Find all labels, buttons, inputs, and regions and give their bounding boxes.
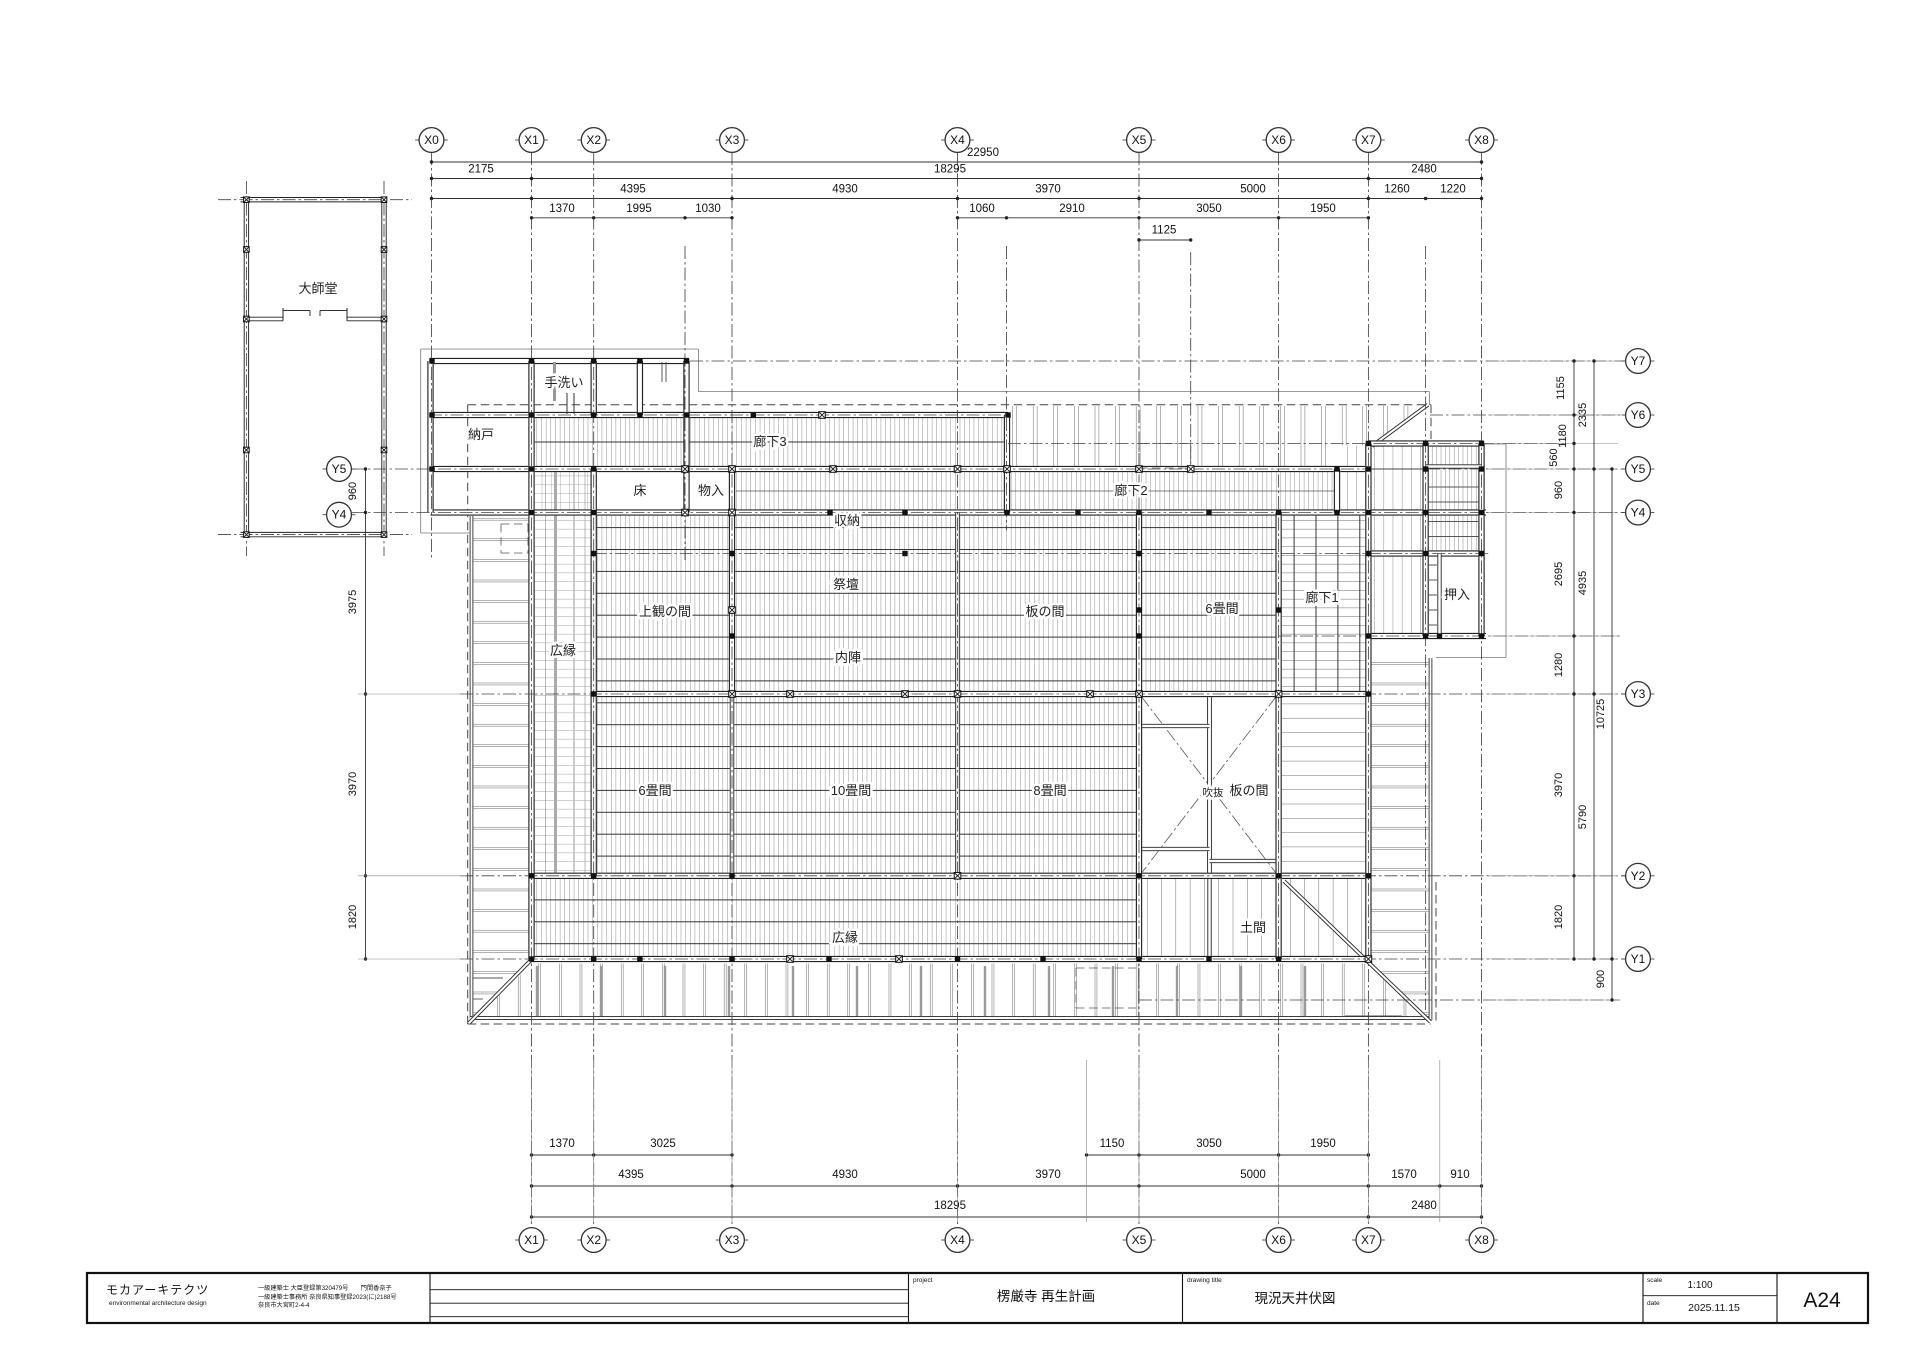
svg-text:1950: 1950	[1310, 203, 1336, 215]
svg-text:1125: 1125	[1152, 225, 1177, 237]
svg-text:X7: X7	[1361, 133, 1376, 147]
svg-text:6畳間: 6畳間	[638, 783, 671, 798]
svg-text:A24: A24	[1803, 1289, 1841, 1312]
svg-text:Y6: Y6	[1631, 408, 1646, 422]
svg-text:X6: X6	[1271, 1233, 1286, 1247]
svg-text:現況天井伏図: 現況天井伏図	[1255, 1291, 1336, 1306]
svg-text:560: 560	[1548, 448, 1560, 466]
svg-text:3050: 3050	[1196, 203, 1222, 215]
svg-text:1820: 1820	[347, 905, 359, 929]
svg-text:1820: 1820	[1553, 905, 1565, 929]
svg-text:X3: X3	[725, 133, 740, 147]
svg-text:X7: X7	[1361, 1233, 1376, 1247]
svg-text:3970: 3970	[1035, 184, 1061, 196]
svg-text:1280: 1280	[1553, 653, 1565, 677]
svg-text:10畳間: 10畳間	[831, 783, 871, 798]
svg-text:広縁: 広縁	[550, 643, 576, 658]
svg-text:奈良市大宮町2-4-4: 奈良市大宮町2-4-4	[258, 1301, 310, 1309]
svg-text:3970: 3970	[1035, 1169, 1061, 1181]
svg-text:収納: 収納	[834, 513, 860, 528]
svg-text:X3: X3	[725, 1233, 740, 1247]
svg-text:X1: X1	[524, 133, 539, 147]
svg-text:5790: 5790	[1577, 805, 1589, 829]
svg-text:18295: 18295	[934, 164, 966, 176]
svg-text:3025: 3025	[650, 1138, 676, 1150]
svg-text:土間: 土間	[1240, 920, 1266, 935]
svg-text:X5: X5	[1132, 1233, 1147, 1247]
svg-text:X5: X5	[1132, 133, 1147, 147]
svg-text:2025.11.15: 2025.11.15	[1688, 1302, 1740, 1314]
svg-text:吹抜: 吹抜	[1203, 786, 1225, 799]
svg-text:2695: 2695	[1553, 562, 1565, 586]
svg-text:X0: X0	[424, 133, 439, 147]
svg-text:4930: 4930	[832, 1169, 858, 1181]
svg-text:4930: 4930	[832, 184, 858, 196]
svg-text:板の間: 板の間	[1229, 783, 1268, 798]
svg-text:X1: X1	[524, 1233, 539, 1247]
svg-text:4395: 4395	[618, 1169, 644, 1181]
svg-text:廊下2: 廊下2	[1114, 483, 1147, 498]
svg-text:6畳間: 6畳間	[1205, 601, 1238, 616]
svg-text:手洗い: 手洗い	[544, 375, 583, 390]
svg-text:scale: scale	[1647, 1277, 1663, 1284]
svg-text:environmental architecture des: environmental architecture design	[109, 1300, 207, 1307]
svg-text:Y7: Y7	[1631, 354, 1646, 368]
svg-text:祭壇: 祭壇	[833, 577, 859, 592]
svg-text:2335: 2335	[1577, 403, 1589, 427]
svg-text:960: 960	[1553, 481, 1565, 499]
svg-text:物入: 物入	[698, 483, 724, 498]
svg-text:Y4: Y4	[1631, 506, 1646, 520]
svg-text:1570: 1570	[1391, 1169, 1417, 1181]
svg-text:Y4: Y4	[332, 508, 347, 522]
svg-text:Y5: Y5	[1631, 462, 1646, 476]
svg-text:X2: X2	[586, 1233, 601, 1247]
svg-text:X2: X2	[586, 133, 601, 147]
svg-text:3970: 3970	[347, 772, 359, 796]
svg-text:廊下3: 廊下3	[753, 434, 786, 449]
svg-text:押入: 押入	[1444, 587, 1470, 602]
svg-text:1155: 1155	[1555, 376, 1567, 400]
svg-text:広縁: 広縁	[832, 930, 858, 945]
svg-text:Y1: Y1	[1631, 952, 1646, 966]
svg-text:18295: 18295	[934, 1200, 966, 1212]
svg-text:Y5: Y5	[332, 462, 347, 476]
svg-text:X4: X4	[950, 133, 965, 147]
svg-text:1060: 1060	[969, 203, 995, 215]
svg-text:X6: X6	[1271, 133, 1286, 147]
svg-text:drawing title: drawing title	[1187, 1277, 1222, 1284]
svg-text:板の間: 板の間	[1025, 604, 1064, 619]
svg-text:X8: X8	[1474, 133, 1489, 147]
svg-text:1150: 1150	[1100, 1138, 1125, 1150]
svg-text:3050: 3050	[1196, 1138, 1222, 1150]
svg-text:Y2: Y2	[1631, 869, 1646, 883]
svg-text:1:100: 1:100	[1687, 1280, 1712, 1291]
svg-text:3970: 3970	[1553, 773, 1565, 797]
svg-text:2910: 2910	[1059, 203, 1085, 215]
svg-text:5000: 5000	[1240, 1169, 1266, 1181]
svg-text:楞厳寺 再生計画: 楞厳寺 再生計画	[997, 1289, 1095, 1304]
svg-text:3975: 3975	[347, 590, 359, 614]
svg-text:2480: 2480	[1411, 1200, 1437, 1212]
svg-text:1370: 1370	[549, 203, 575, 215]
svg-text:モカアーキテクツ: モカアーキテクツ	[106, 1283, 209, 1297]
svg-text:1180: 1180	[1557, 424, 1569, 448]
svg-text:2175: 2175	[468, 164, 494, 176]
svg-text:22950: 22950	[967, 147, 999, 159]
svg-text:廊下1: 廊下1	[1305, 590, 1338, 605]
svg-text:大師堂: 大師堂	[298, 281, 337, 296]
svg-text:1220: 1220	[1440, 184, 1466, 196]
svg-text:2480: 2480	[1411, 164, 1437, 176]
svg-text:5000: 5000	[1240, 184, 1266, 196]
svg-text:1260: 1260	[1384, 184, 1410, 196]
svg-text:X8: X8	[1474, 1233, 1489, 1247]
svg-text:960: 960	[347, 482, 359, 500]
svg-text:project: project	[913, 1277, 933, 1284]
svg-text:10725: 10725	[1595, 699, 1607, 730]
svg-text:上観の間: 上観の間	[639, 604, 691, 619]
svg-text:納戸: 納戸	[468, 427, 494, 442]
svg-text:1995: 1995	[626, 203, 652, 215]
svg-text:X4: X4	[950, 1233, 965, 1247]
svg-text:一級建築士事務所 奈良県知事登録2023(に)2188号: 一級建築士事務所 奈良県知事登録2023(に)2188号	[258, 1293, 397, 1301]
svg-text:Y3: Y3	[1631, 687, 1646, 701]
svg-text:900: 900	[1595, 970, 1607, 988]
svg-text:床: 床	[633, 483, 646, 498]
svg-text:内陣: 内陣	[835, 650, 861, 665]
svg-text:910: 910	[1450, 1169, 1469, 1181]
svg-text:1950: 1950	[1310, 1138, 1336, 1150]
svg-text:一級建築士 大臣登録第320479号 門間香奈子: 一級建築士 大臣登録第320479号 門間香奈子	[258, 1284, 392, 1292]
svg-text:8畳間: 8畳間	[1033, 783, 1066, 798]
svg-text:4395: 4395	[620, 184, 646, 196]
svg-text:date: date	[1647, 1300, 1660, 1307]
svg-text:4935: 4935	[1577, 571, 1589, 595]
svg-text:1030: 1030	[695, 203, 721, 215]
svg-text:1370: 1370	[549, 1138, 575, 1150]
